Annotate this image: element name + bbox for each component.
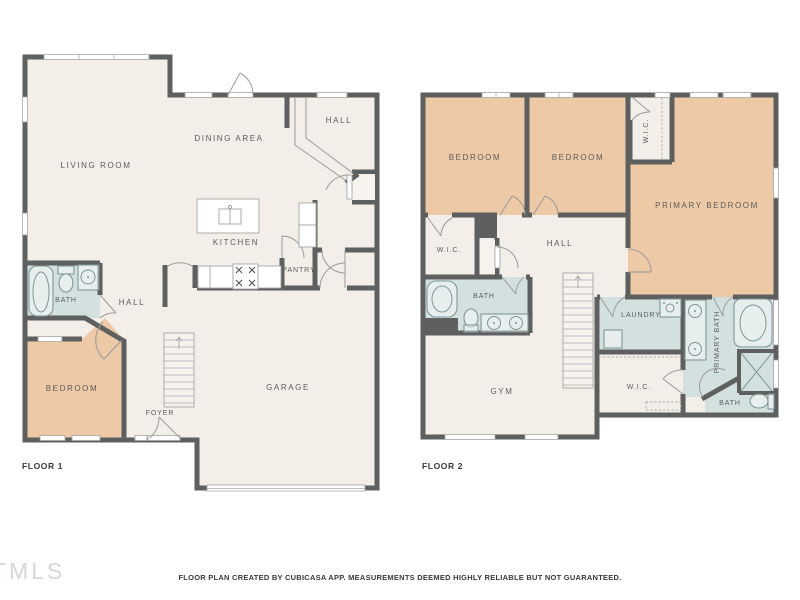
- toilet-icon: [750, 394, 768, 408]
- room-label-dining: DINING AREA: [194, 134, 263, 143]
- room-label-bedroom1: BEDROOM: [46, 384, 99, 393]
- hall-closet: [480, 240, 495, 275]
- room-label-living: LIVING ROOM: [61, 161, 132, 170]
- toilet-icon: [464, 309, 478, 327]
- room-label-hall-lower: HALL: [119, 298, 145, 307]
- room-label-laundry: LAUNDRY: [621, 312, 661, 319]
- room-label-garage: GARAGE: [266, 383, 310, 392]
- room-label-wic-left: W.I.C.: [437, 247, 461, 254]
- room-label-gym: GYM: [490, 387, 513, 396]
- toilet-icon: [58, 266, 74, 274]
- floor1-plan: LIVING ROOM DINING AREA HALL KITCHEN PAN…: [23, 55, 378, 492]
- room-label-bath2: BATH: [473, 293, 495, 300]
- room-label-hall2: HALL: [547, 239, 573, 248]
- room-label-wic-top: W.I.C.: [643, 119, 650, 143]
- cabinet-icon: [299, 225, 316, 247]
- room-label-pantry: PANTRY: [282, 267, 315, 274]
- garage-door: [207, 485, 365, 491]
- floor2-stairs: [563, 273, 593, 388]
- room-label-foyer: FOYER: [146, 410, 175, 417]
- room-label-primary-bedroom: PRIMARY BEDROOM: [655, 201, 759, 210]
- floor1-caption: FLOOR 1: [22, 461, 63, 471]
- double-sink-icon: [481, 314, 528, 332]
- kitchen-counter: [198, 266, 233, 288]
- room-label-wic-lower: W.I.C.: [627, 384, 651, 391]
- room-label-bath1: BATH: [55, 297, 77, 304]
- washer-icon: [604, 330, 622, 348]
- room-label-kitchen: KITCHEN: [213, 238, 259, 247]
- floor2-caption: FLOOR 2: [422, 461, 463, 471]
- floor2-plan: BEDROOM BEDROOM W.I.C. PRIMARY BEDROOM W…: [423, 93, 779, 440]
- cabinet-icon: [299, 203, 316, 225]
- room-label-bedroom-b: BEDROOM: [552, 153, 605, 162]
- wall-block: [423, 318, 458, 333]
- room-label-bath-small: BATH: [719, 400, 741, 407]
- footer-disclaimer: FLOOR PLAN CREATED BY CUBICASA APP. MEAS…: [0, 573, 800, 582]
- floor-plan-page: LIVING ROOM DINING AREA HALL KITCHEN PAN…: [0, 0, 800, 600]
- kitchen-counter: [258, 266, 281, 288]
- floor1-stairs: [164, 333, 194, 407]
- room-label-hall-upper: HALL: [326, 116, 352, 125]
- room-label-primary-bath: PRIMARY BATH: [714, 311, 721, 374]
- floor-plan-drawing: LIVING ROOM DINING AREA HALL KITCHEN PAN…: [0, 0, 800, 600]
- vanity-icon: [685, 300, 706, 360]
- laundry-sink-icon: [660, 299, 681, 317]
- room-label-bedroom-a: BEDROOM: [449, 153, 502, 162]
- tmls-watermark: TMLS: [0, 558, 65, 585]
